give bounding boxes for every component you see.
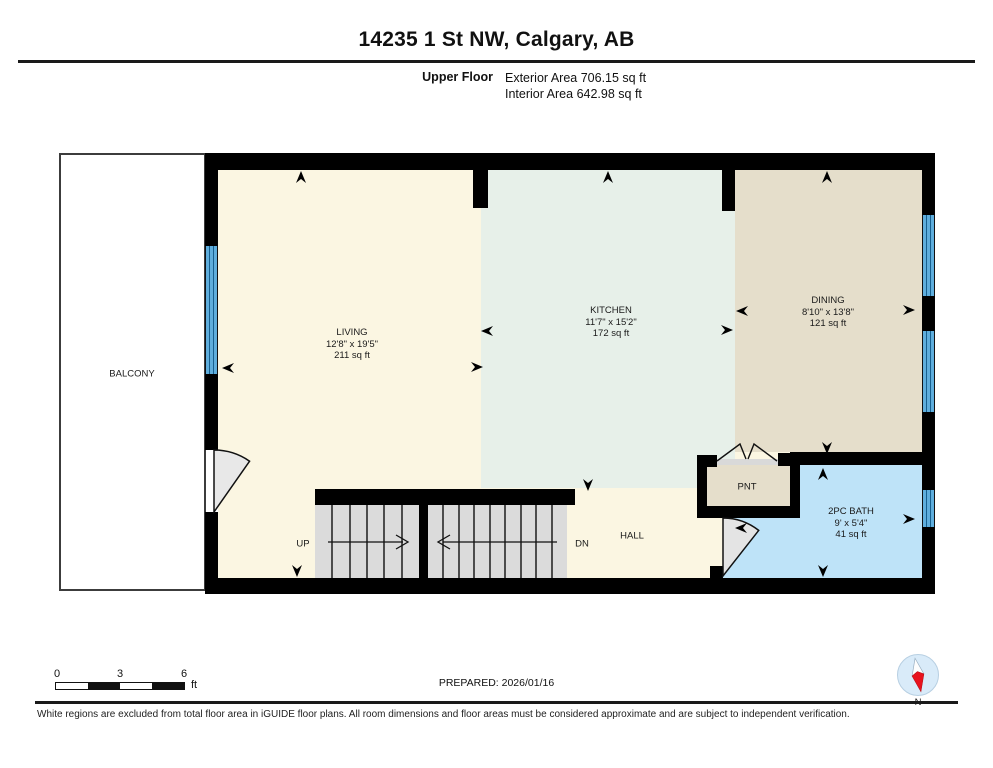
dining-window-lower: [922, 331, 935, 412]
living-area-value: 211 sq ft: [326, 350, 378, 362]
header-divider: [18, 60, 975, 63]
stairs-up-label: UP: [296, 538, 309, 550]
dining-dimensions: 8'10" x 13'8": [802, 306, 854, 318]
bath-dimensions: 9' x 5'4": [828, 517, 874, 529]
wall-right-lower: [922, 527, 935, 594]
wall-pantry-corner-left: [697, 455, 717, 467]
wall-right-between-windows: [922, 296, 935, 331]
wall-top: [205, 153, 935, 170]
living-label: LIVING 12'8" x 19'5" 211 sq ft: [326, 327, 378, 362]
kitchen-label: KITCHEN 11'7" x 15'2" 172 sq ft: [585, 305, 636, 340]
wall-kitchen-dining-stub: [722, 170, 735, 211]
pantry-label: PNT: [738, 481, 757, 493]
wall-stair-divider: [419, 505, 428, 580]
living-name: LIVING: [326, 327, 378, 339]
wall-bath-door-jamb: [710, 566, 723, 580]
floor-areas: Exterior Area 706.15 sq ft Interior Area…: [505, 70, 646, 102]
wall-left-upper: [205, 153, 218, 246]
exterior-area: Exterior Area 706.15 sq ft: [505, 70, 646, 86]
dining-name: DINING: [802, 295, 854, 307]
floorplan-page: 14235 1 St NW, Calgary, AB Upper Floor E…: [0, 0, 993, 768]
wall-pantry-corner-right: [778, 453, 800, 466]
bath-label: 2PC BATH 9' x 5'4" 41 sq ft: [828, 506, 874, 541]
floor-name: Upper Floor: [422, 70, 493, 84]
footer-disclaimer: White regions are excluded from total fl…: [37, 709, 967, 720]
interior-area: Interior Area 642.98 sq ft: [505, 86, 646, 102]
living-dimensions: 12'8" x 19'5": [326, 338, 378, 350]
wall-pantry-bottom: [697, 506, 800, 518]
stairs-down-run: [428, 505, 567, 578]
prepared-date: PREPARED: 2026/01/16: [0, 677, 993, 689]
wall-left-middle: [205, 374, 218, 450]
wall-bottom: [205, 578, 935, 594]
wall-left-lower: [205, 512, 218, 594]
wall-dining-bath: [790, 452, 935, 465]
compass-needle-icon: [898, 655, 938, 695]
kitchen-dimensions: 11'7" x 15'2": [585, 316, 636, 328]
dining-window-upper: [922, 215, 935, 296]
dining-label: DINING 8'10" x 13'8" 121 sq ft: [802, 295, 854, 330]
bath-name: 2PC BATH: [828, 506, 874, 518]
footer-divider: [35, 701, 958, 704]
balcony-label: BALCONY: [109, 368, 154, 380]
wall-stair-header: [315, 489, 575, 505]
page-title: 14235 1 St NW, Calgary, AB: [0, 28, 993, 52]
kitchen-name: KITCHEN: [585, 305, 636, 317]
stairs-down-label: DN: [575, 538, 589, 550]
compass: [897, 654, 939, 696]
stairs-up-run: [315, 505, 419, 578]
balcony-sliding-door: [205, 246, 218, 374]
kitchen-area-value: 172 sq ft: [585, 328, 636, 340]
bath-window: [922, 490, 935, 527]
wall-right-upper: [922, 153, 935, 215]
dining-area-value: 121 sq ft: [802, 318, 854, 330]
wall-living-kitchen-stub: [473, 170, 488, 208]
hall-label: HALL: [620, 530, 644, 542]
bath-area-value: 41 sq ft: [828, 529, 874, 541]
wall-right-middle: [922, 412, 935, 490]
